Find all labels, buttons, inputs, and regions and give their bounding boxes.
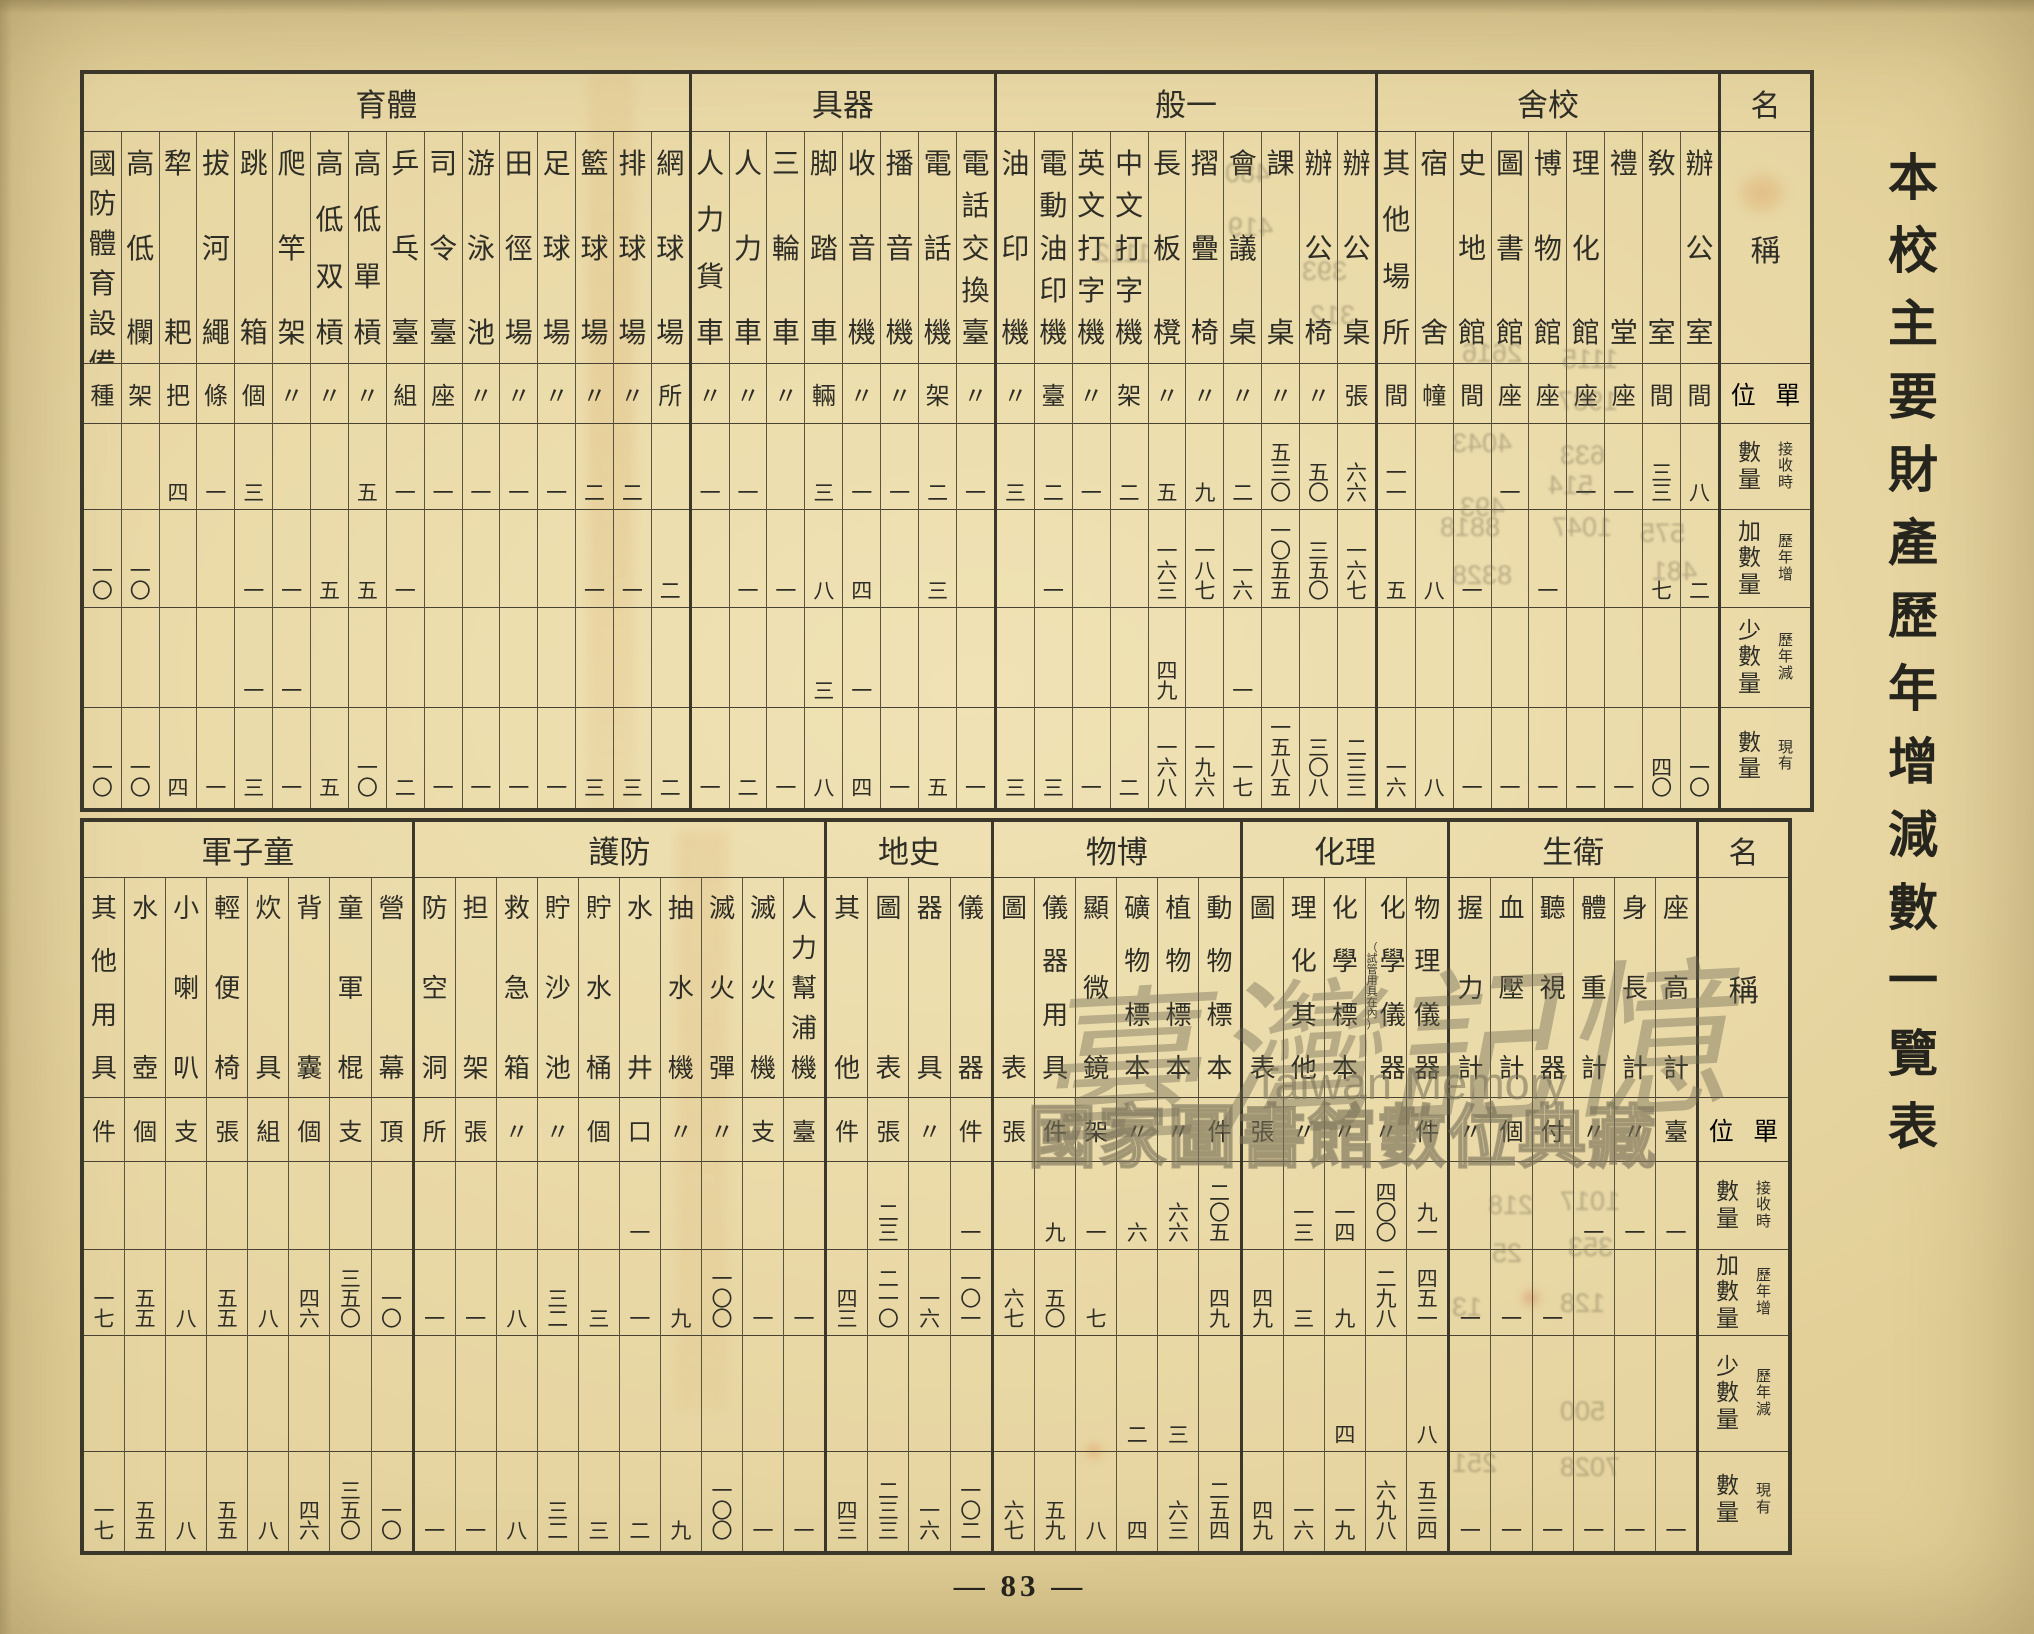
qty-received: 五〇 <box>1300 424 1337 510</box>
qty-added-value: 二 <box>1689 582 1710 602</box>
qty-received-value: 二三 <box>878 1204 899 1244</box>
qty-added: 一〇一 <box>951 1250 991 1336</box>
item-column: 理化館座一一 <box>1566 132 1604 808</box>
qty-reduced <box>1243 1336 1283 1452</box>
qty-received-value: 五三〇 <box>1270 444 1291 504</box>
item-name-cell: 電動油印機 <box>1035 132 1072 364</box>
qty-current: 五五 <box>125 1452 165 1547</box>
qty-received <box>273 424 310 510</box>
item-column: 水井口一一二 <box>619 878 660 1551</box>
qty-reduced <box>289 1336 329 1452</box>
qty-added: 七 <box>1643 510 1680 608</box>
qty-added-value: 一〇 <box>130 562 151 602</box>
item-name-text: 担架 <box>463 888 489 1085</box>
section-physics-chemistry: 理化物理儀器件九一四五一八五三四化學儀器（試管用具在內）〃四〇〇二九八六九八化學… <box>1240 822 1448 1551</box>
item-name-text: 其他場所 <box>1382 142 1410 351</box>
item-column: 人力車〃一一二 <box>729 132 767 808</box>
qty-added <box>1111 510 1148 608</box>
unit-cell: 個 <box>235 364 272 424</box>
qty-added: 八 <box>248 1250 288 1336</box>
qty-received: 一 <box>692 424 729 510</box>
item-name-cell: 身長計 <box>1615 878 1655 1098</box>
qty-added <box>1605 510 1642 608</box>
qty-added: 一 <box>235 510 272 608</box>
qty-current-value: 三二 <box>547 1502 568 1542</box>
item-name-cell: 司令臺 <box>425 132 462 364</box>
qty-received <box>415 1162 455 1250</box>
unit-cell: 間 <box>1454 364 1491 424</box>
qty-reduced <box>1492 608 1529 708</box>
qty-current: 一 <box>784 1452 824 1547</box>
qty-added: 一六 <box>909 1250 949 1336</box>
unit-cell: 個 <box>1491 1098 1531 1162</box>
qty-added: 五〇 <box>1035 1250 1075 1336</box>
item-column: 圖表張二三二一〇二三三 <box>867 878 908 1551</box>
item-name-cell: 儀器用具 <box>1035 878 1075 1098</box>
qty-added-value: 一 <box>1462 582 1483 602</box>
item-name-cell: 足球場 <box>538 132 575 364</box>
qty-added-value: 二九八 <box>1376 1270 1397 1330</box>
item-column: 乒乓臺組一一二 <box>386 132 424 808</box>
qty-added-value: 一 <box>281 582 302 602</box>
label-sub-現有: 現有 <box>1778 740 1793 773</box>
section-history-geography: 史地儀器件一一〇一一〇二器具〃一六一六圖表張二三二一〇二三三其他件四三四三 <box>824 822 991 1551</box>
qty-received-value: 六六 <box>1346 464 1367 504</box>
qty-current: 五 <box>311 708 348 804</box>
qty-added: 一 <box>1533 1250 1573 1336</box>
qty-added: 一 <box>1529 510 1566 608</box>
qty-current: 二三三 <box>868 1452 908 1547</box>
qty-added-value: 八 <box>813 582 834 602</box>
qty-received <box>579 1162 619 1250</box>
unit-cell: 付 <box>1533 1098 1573 1162</box>
qty-current-value: 五五 <box>135 1502 156 1542</box>
qty-added <box>957 510 994 608</box>
qty-reduced <box>1567 608 1604 708</box>
qty-current: 一 <box>881 708 918 804</box>
qty-reduced-value: 四 <box>1334 1426 1355 1446</box>
qty-reduced: 二 <box>1117 1336 1157 1452</box>
item-name-text: 體重計 <box>1581 888 1607 1085</box>
qty-current: 八 <box>497 1452 537 1547</box>
qty-reduced <box>1076 1336 1116 1452</box>
item-name-text: 貯沙池 <box>545 888 571 1085</box>
qty-reduced <box>349 608 386 708</box>
qty-reduced <box>1454 608 1491 708</box>
qty-reduced-value: 一 <box>243 682 264 702</box>
item-name-text: 化學標本 <box>1332 888 1358 1085</box>
qty-current-value: 二 <box>395 779 416 799</box>
item-name-text: 貯水桶 <box>586 888 612 1085</box>
qty-reduced <box>994 1336 1034 1452</box>
item-name: 宿舍 <box>1416 142 1453 351</box>
item-column: 血壓計個一一 <box>1490 878 1531 1551</box>
item-name-text: 化學儀器 <box>1380 888 1406 1085</box>
scanned-document-page: 本校主要財產歷年增減數一覽表 名稱單位接收時數量歷年增加數量歷年減少數量現有數量… <box>0 0 2034 1634</box>
qty-received-value: 一 <box>508 484 529 504</box>
unit-cell: 個 <box>289 1098 329 1162</box>
unit-cell: 件 <box>1035 1098 1075 1162</box>
item-name-text: 中文打字機 <box>1115 142 1143 351</box>
qty-added-value: 五 <box>357 582 378 602</box>
qty-current-value: 一 <box>1613 779 1634 799</box>
qty-added <box>1117 1250 1157 1336</box>
qty-current-value: 六七 <box>1003 1502 1024 1542</box>
section-air-defense: 防護人力幫浦機臺一一滅火機支一一滅火彈〃一〇〇一〇〇抽水機〃九九水井口一一二貯水… <box>412 822 824 1551</box>
qty-current-value: 五五 <box>217 1502 238 1542</box>
item-name-cell: 電話機 <box>919 132 956 364</box>
qty-added: 八 <box>497 1250 537 1336</box>
qty-added-value: 一〇 <box>381 1290 402 1330</box>
qty-received-value: 四 <box>168 484 189 504</box>
qty-added-value: 一〇五五 <box>1270 522 1291 602</box>
unit-cell: 臺 <box>1035 364 1072 424</box>
qty-added-value: 一 <box>1542 1310 1563 1330</box>
qty-reduced <box>1338 608 1375 708</box>
qty-current: 一六 <box>1378 708 1415 804</box>
qty-current-value: 三 <box>1005 779 1026 799</box>
qty-added: 一七 <box>84 1250 124 1336</box>
qty-current: 一 <box>1605 708 1642 804</box>
qty-added <box>425 510 462 608</box>
qty-current: 四九 <box>1243 1452 1283 1547</box>
item-name: 拔河繩 <box>197 142 234 351</box>
qty-reduced: 一 <box>1224 608 1261 708</box>
qty-reduced <box>702 1336 742 1452</box>
item-column: 油印機〃三三 <box>997 132 1034 808</box>
qty-current: 五九 <box>1035 1452 1075 1547</box>
item-name-cell: 防空洞 <box>415 878 455 1098</box>
qty-added: 八 <box>805 510 842 608</box>
qty-received: 一 <box>425 424 462 510</box>
qty-added-value: 七 <box>1651 582 1672 602</box>
item-name-cell: 高低双槓 <box>311 132 348 364</box>
qty-added: 四九 <box>1199 1250 1239 1336</box>
unit-cell: 〃 <box>1149 364 1186 424</box>
unit-cell: 〃 <box>1450 1098 1490 1162</box>
qty-received: 三 <box>997 424 1034 510</box>
qty-current-value: 一〇 <box>92 759 113 799</box>
qty-reduced <box>1491 1336 1531 1452</box>
item-name: 貯水桶 <box>579 888 619 1085</box>
qty-reduced-value: 一 <box>1232 682 1253 702</box>
qty-added: 三二 <box>538 1250 578 1336</box>
section-columns-boy-scouts: 營幕頂一〇一〇童軍棍支三五〇三五〇背囊個四六四六炊具組八八輕便椅張五五五五小喇叭… <box>84 878 412 1551</box>
qty-received-value: 二 <box>1043 484 1064 504</box>
qty-received: 一 <box>951 1162 991 1250</box>
item-column: 座高計臺一一 <box>1655 878 1696 1551</box>
item-column: 敎室間三三七四〇 <box>1642 132 1680 808</box>
qty-reduced <box>1073 608 1110 708</box>
qty-current: 一 <box>1574 1452 1614 1547</box>
item-name: 犂耙 <box>160 142 197 351</box>
item-name: 圖表 <box>1243 888 1283 1085</box>
item-name-text: 握力計 <box>1457 888 1483 1085</box>
qty-received-value: 一 <box>629 1224 650 1244</box>
qty-current-value: 一五八五 <box>1270 719 1291 799</box>
qty-added-value: 二一〇 <box>878 1270 899 1330</box>
item-column: 礦物標本〃六二四 <box>1116 878 1157 1551</box>
item-name-cell: 摺疊椅 <box>1186 132 1223 364</box>
item-name: 水壺 <box>125 888 165 1085</box>
qty-current: 二 <box>730 708 767 804</box>
qty-added-value: 八 <box>258 1310 279 1330</box>
qty-received-value: 一 <box>205 484 226 504</box>
qty-received <box>784 1162 824 1250</box>
qty-current-value: 六三 <box>1168 1502 1189 1542</box>
qty-received <box>372 1162 412 1250</box>
qty-current-value: 一 <box>205 779 226 799</box>
qty-current-value: 一 <box>700 779 721 799</box>
qty-reduced <box>197 608 234 708</box>
unit-cell: 座 <box>425 364 462 424</box>
qty-added: 四六 <box>289 1250 329 1336</box>
qty-added-value: 五五 <box>135 1290 156 1330</box>
qty-current: 一 <box>957 708 994 804</box>
qty-received: 三 <box>235 424 272 510</box>
item-name-text: 足球場 <box>543 142 571 351</box>
item-name-cell: 網球場 <box>652 132 689 364</box>
item-name: 會議桌 <box>1224 142 1261 351</box>
qty-received-value: 九 <box>1045 1224 1066 1244</box>
qty-current-value: 一 <box>1624 1522 1645 1542</box>
qty-added: 三 <box>919 510 956 608</box>
item-column: 担架張一一 <box>455 878 496 1551</box>
item-name: 摺疊椅 <box>1186 142 1223 351</box>
qty-received-value: 一 <box>1081 484 1102 504</box>
qty-reduced <box>957 608 994 708</box>
section-natural-history: 博物動物標本件二〇五四九二五四植物標本〃六六三六三礦物標本〃六二四顯微鏡架一七八… <box>991 822 1240 1551</box>
item-note-text: （試管用具在內） <box>1367 888 1378 1085</box>
qty-received-value: 一 <box>851 484 872 504</box>
qty-current-value: 一 <box>424 1522 445 1542</box>
qty-current: 一 <box>415 1452 455 1547</box>
qty-current: 四三 <box>827 1452 867 1547</box>
qty-current: 五 <box>919 708 956 804</box>
item-name: 滅火彈 <box>702 888 742 1085</box>
qty-reduced-value: 三 <box>1168 1426 1189 1446</box>
qty-current: 三五〇 <box>330 1452 370 1547</box>
section-physical-education: 體育網球場所二二排球場〃二一三籃球場〃二一三足球場〃一一田徑場〃一一游泳池〃一一… <box>84 74 689 808</box>
item-name-cell: 播音機 <box>881 132 918 364</box>
qty-received <box>538 1162 578 1250</box>
item-name-cell: 顯微鏡 <box>1076 878 1116 1098</box>
qty-reduced-value: 二 <box>1127 1426 1148 1446</box>
unit-cell: 〃 <box>311 364 348 424</box>
unit-cell: 〃 <box>1300 364 1337 424</box>
qty-reduced <box>868 1336 908 1452</box>
qty-added-value: 一 <box>465 1310 486 1330</box>
qty-received-value: 九 <box>1194 484 1215 504</box>
qty-added-value: 五〇 <box>1045 1290 1066 1330</box>
qty-current: 一 <box>1073 708 1110 804</box>
qty-current-value: 一 <box>965 779 986 799</box>
qty-current-value: 一〇〇 <box>711 1482 732 1542</box>
qty-current-value: 八 <box>176 1522 197 1542</box>
qty-received: 三三 <box>1643 424 1680 510</box>
qty-received-value: 一 <box>1665 1224 1686 1244</box>
unit-cell: 條 <box>197 364 234 424</box>
item-name: 收音機 <box>843 142 880 351</box>
qty-current: 一〇 <box>84 708 121 804</box>
item-name-cell: 理化館 <box>1567 132 1604 364</box>
qty-added-value: 四九 <box>1209 1290 1230 1330</box>
item-name-cell: 化學儀器（試管用具在內） <box>1366 878 1406 1098</box>
qty-received: 六 <box>1117 1162 1157 1250</box>
unit-cell: 把 <box>160 364 197 424</box>
qty-received <box>652 424 689 510</box>
qty-added: 四三 <box>827 1250 867 1336</box>
item-name-text: 身長計 <box>1622 888 1648 1085</box>
qty-added-value: 一 <box>243 582 264 602</box>
item-name: 顯微鏡 <box>1076 888 1116 1085</box>
qty-current-value: 一 <box>1501 1522 1522 1542</box>
label-qty-row-0: 接收時數量 <box>1721 424 1810 510</box>
qty-received: 一 <box>843 424 880 510</box>
item-name-text: 電話交換臺 <box>962 142 990 351</box>
item-name: 乒乓臺 <box>387 142 424 351</box>
qty-reduced <box>1378 608 1415 708</box>
unit-cell: 幢 <box>1416 364 1453 424</box>
unit-cell: 〃 <box>1186 364 1223 424</box>
unit-cell: 座 <box>1605 364 1642 424</box>
unit-cell: 件 <box>827 1098 867 1162</box>
item-column: 游泳池〃一一 <box>462 132 500 808</box>
qty-reduced <box>166 1336 206 1452</box>
item-name: 物理儀器 <box>1407 888 1447 1085</box>
qty-received <box>1533 1162 1573 1250</box>
item-name-cell: 炊具 <box>248 878 288 1098</box>
qty-current: 一 <box>692 708 729 804</box>
item-name: 營幕 <box>372 888 412 1085</box>
item-name-cell: 圖表 <box>1243 878 1283 1098</box>
unit-cell: 張 <box>1243 1098 1283 1162</box>
qty-reduced <box>1300 608 1337 708</box>
qty-received-value: 九一 <box>1417 1204 1438 1244</box>
label-qty-row-3: 現有數量 <box>1699 1452 1788 1547</box>
qty-added: 一六七 <box>1338 510 1375 608</box>
item-column: 高低欄架一〇一〇 <box>121 132 159 808</box>
item-column: 三輪車〃一一 <box>766 132 804 808</box>
item-name: 電話交換臺 <box>957 142 994 351</box>
section-title-natural-history: 博物 <box>994 822 1240 878</box>
qty-reduced <box>125 1336 165 1452</box>
unit-cell: 所 <box>415 1098 455 1162</box>
item-column: 辦公桌張六六一六七二三三 <box>1337 132 1375 808</box>
unit-cell: 張 <box>456 1098 496 1162</box>
qty-current: 一 <box>743 1452 783 1547</box>
qty-reduced <box>372 1336 412 1452</box>
label-sub-歷年增: 歷年增 <box>1756 1268 1771 1318</box>
item-column: 炊具組八八 <box>247 878 288 1551</box>
qty-received <box>207 1162 247 1250</box>
item-column: 救急箱〃八八 <box>496 878 537 1551</box>
item-name-text: 宿舍 <box>1420 142 1448 351</box>
item-name-text: 滅火彈 <box>709 888 735 1085</box>
qty-current-value: 一 <box>1460 1522 1481 1542</box>
qty-current-value: 二三三 <box>878 1482 899 1542</box>
qty-added <box>1574 1250 1614 1336</box>
qty-received: 五三〇 <box>1262 424 1299 510</box>
item-name: 輕便椅 <box>207 888 247 1085</box>
label-qty-row-1: 歷年增加數量 <box>1699 1250 1788 1336</box>
qty-added-value: 九 <box>1334 1310 1355 1330</box>
qty-added <box>692 510 729 608</box>
item-name-text: 會議桌 <box>1229 142 1257 351</box>
qty-added-value: 一六三 <box>1156 542 1177 602</box>
unit-cell: 口 <box>620 1098 660 1162</box>
unit-cell: 種 <box>84 364 121 424</box>
item-name: 圖表 <box>868 888 908 1085</box>
qty-added: 一 <box>415 1250 455 1336</box>
item-name-cell: 排球場 <box>614 132 651 364</box>
qty-received-value: 一 <box>395 484 416 504</box>
qty-added <box>1615 1250 1655 1336</box>
qty-reduced <box>997 608 1034 708</box>
item-name-text: 英文打字機 <box>1077 142 1105 351</box>
item-name: 滅火機 <box>743 888 783 1085</box>
label-main-少數量: 少數量 <box>1738 618 1761 697</box>
label-sub-歷年減: 歷年減 <box>1778 633 1793 683</box>
qty-current: 一 <box>500 708 537 804</box>
item-name: 其他 <box>827 888 867 1085</box>
top-label-column: 名稱單位接收時數量歷年增加數量歷年減少數量現有數量 <box>1718 74 1810 808</box>
item-name-text: 防空洞 <box>422 888 448 1085</box>
unit-cell: 〃 <box>767 364 804 424</box>
item-name-cell: 圖書館 <box>1492 132 1529 364</box>
unit-cell: 支 <box>743 1098 783 1162</box>
qty-added-value: 三二 <box>547 1290 568 1330</box>
qty-current: 一 <box>1567 708 1604 804</box>
qty-added: 九 <box>1325 1250 1365 1336</box>
item-name-text: 電話機 <box>924 142 952 351</box>
item-column: 營幕頂一〇一〇 <box>371 878 412 1551</box>
qty-added-value: 一 <box>629 1310 650 1330</box>
item-name: 化學標本 <box>1325 888 1365 1085</box>
item-name-cell: 聽視器 <box>1533 878 1573 1098</box>
qty-current: 一 <box>1529 708 1566 804</box>
qty-current-value: 一九 <box>1334 1502 1355 1542</box>
qty-reduced <box>1186 608 1223 708</box>
qty-reduced <box>330 1336 370 1452</box>
qty-added: 一 <box>1035 510 1072 608</box>
item-name-cell: 敎室 <box>1643 132 1680 364</box>
qty-reduced <box>463 608 500 708</box>
unit-cell: 輛 <box>805 364 842 424</box>
label-qty-row-3: 現有數量 <box>1721 708 1810 804</box>
section-equipment-vehicles: 器具電話交換臺〃一一電話機架二三五播音機〃一一收音機〃一四一四脚踏車輛三八三八三… <box>689 74 994 808</box>
item-column: 宿舍幢八八 <box>1415 132 1453 808</box>
item-name-cell: 乒乓臺 <box>387 132 424 364</box>
qty-reduced-value: 一 <box>281 682 302 702</box>
qty-current-value: 四 <box>168 779 189 799</box>
qty-received: 一 <box>730 424 767 510</box>
item-name-cell: 游泳池 <box>463 132 500 364</box>
label-unit: 單位 <box>1699 1098 1788 1162</box>
item-name-cell: 田徑場 <box>500 132 537 364</box>
qty-current: 四六 <box>289 1452 329 1547</box>
unit-cell: 個 <box>125 1098 165 1162</box>
qty-received-value: 四〇〇 <box>1376 1184 1397 1244</box>
item-name-cell: 禮堂 <box>1605 132 1642 364</box>
item-name-text: 滅火機 <box>750 888 776 1085</box>
section-columns-general-furniture: 辦公桌張六六一六七二三三辦公椅〃五〇三五〇三〇八課桌〃五三〇一〇五五一五八五會議… <box>997 132 1375 808</box>
item-name-text: 高低欄 <box>126 142 154 351</box>
item-name-text: 營幕 <box>379 888 405 1085</box>
qty-current-value: 八 <box>506 1522 527 1542</box>
qty-added-value: 三 <box>1293 1310 1314 1330</box>
label-main-加數量: 加數量 <box>1716 1253 1739 1332</box>
